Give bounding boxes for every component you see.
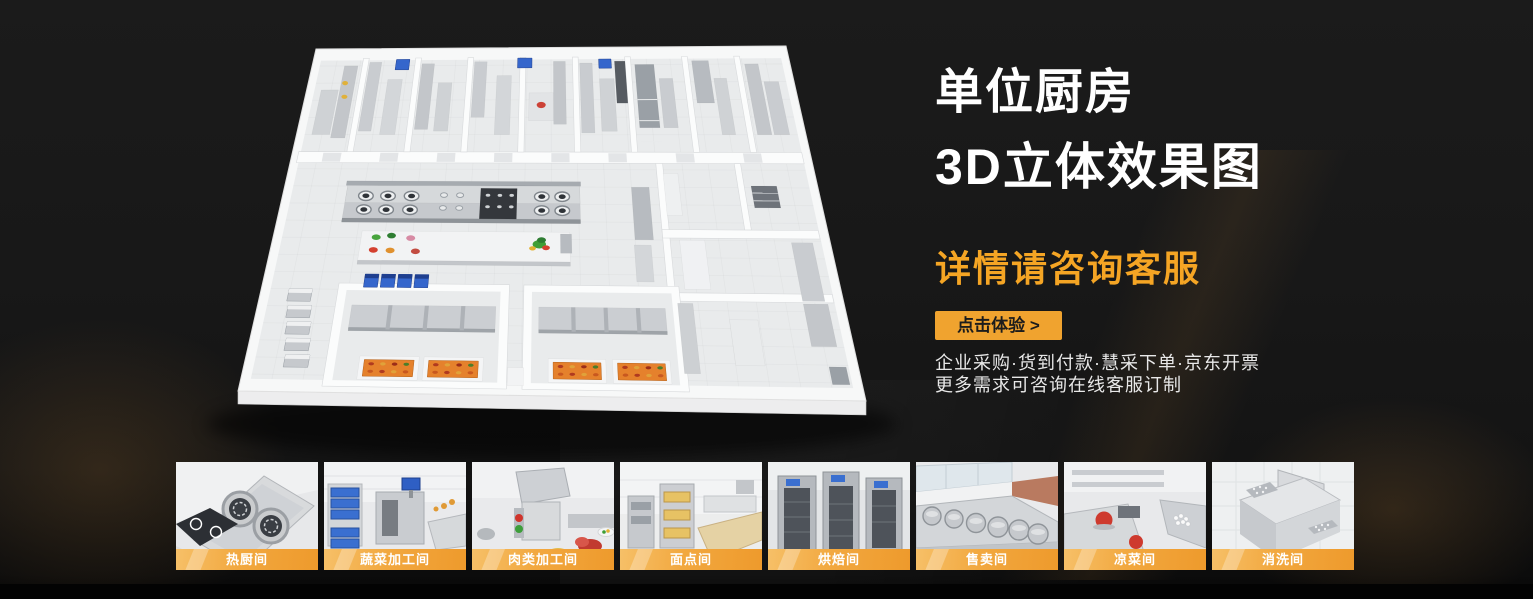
thumbnail-label: 热厨间 xyxy=(176,549,318,570)
banner: 单位厨房 3D立体效果图 详情请咨询客服 点击体验 > 企业采购·货到付款·慧采… xyxy=(0,0,1533,599)
cta-button[interactable]: 点击体验 > xyxy=(935,311,1062,340)
thumbnail-selling-room[interactable]: 售卖间 xyxy=(916,462,1058,570)
thumbnail-label: 售卖间 xyxy=(916,549,1058,570)
thumbnail-label: 消洗间 xyxy=(1212,549,1354,570)
hero-desc-line2: 更多需求可咨询在线客服订制 xyxy=(935,375,1182,396)
thumbnail-pastry-room[interactable]: 面点间 xyxy=(620,462,762,570)
bottom-black-strip xyxy=(0,584,1533,599)
thumbnail-vegetable-processing[interactable]: 蔬菜加工间 xyxy=(324,462,466,570)
thumbnail-label: 凉菜间 xyxy=(1064,549,1206,570)
hero-desc-line1: 企业采购·货到付款·慧采下单·京东开票 xyxy=(935,353,1260,374)
thumbnail-label: 烘焙间 xyxy=(768,549,910,570)
thumbnail-hot-kitchen[interactable]: 热厨间 xyxy=(176,462,318,570)
thumbnail-label: 肉类加工间 xyxy=(472,549,614,570)
hero-subtitle: 详情请咨询客服 xyxy=(935,248,1201,290)
room-gallery: 热厨间 蔬菜加 xyxy=(176,462,1354,570)
thumbnail-cold-dish-room[interactable]: 凉菜间 xyxy=(1064,462,1206,570)
thumbnail-label: 蔬菜加工间 xyxy=(324,549,466,570)
thumbnail-washing-room[interactable]: 消洗间 xyxy=(1212,462,1354,570)
thumbnail-baking-room[interactable]: 烘焙间 xyxy=(768,462,910,570)
hero-title-line2: 3D立体效果图 xyxy=(935,136,1263,198)
thumbnail-label: 面点间 xyxy=(620,549,762,570)
thumbnail-meat-processing[interactable]: 肉类加工间 xyxy=(472,462,614,570)
hero-title-line1: 单位厨房 xyxy=(935,64,1135,122)
